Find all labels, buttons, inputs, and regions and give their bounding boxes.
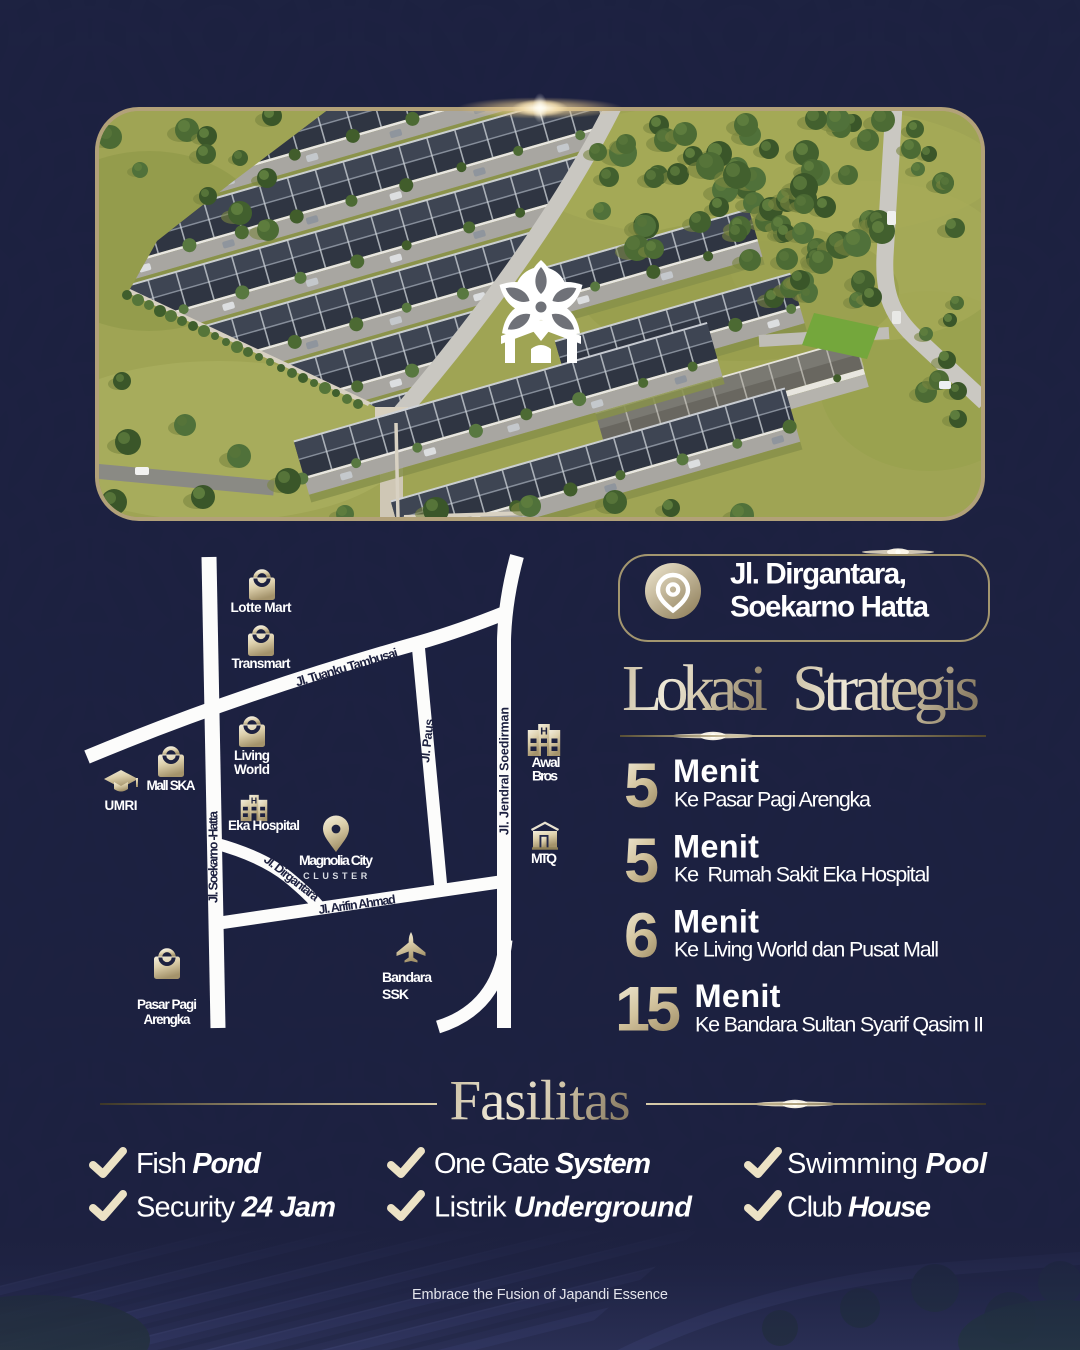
svg-text:Security 24 Jam: Security 24 Jam	[136, 1192, 336, 1224]
svg-text:Lotte Mart: Lotte Mart	[231, 600, 293, 615]
svg-text:Ke Bandara Sultan Syarif Qasim: Ke Bandara Sultan Syarif Qasim II	[695, 1013, 984, 1037]
svg-text:5: 5	[624, 826, 659, 896]
svg-text:Bandara: Bandara	[382, 969, 432, 985]
svg-text:Fasilitas: Fasilitas	[450, 1070, 631, 1133]
svg-text:5: 5	[624, 751, 659, 821]
svg-text:Strategis: Strategis	[792, 652, 980, 725]
svg-text:Magnolia City: Magnolia City	[299, 852, 373, 868]
svg-text:Ke Pasar Pagi Arengka: Ke Pasar Pagi Arengka	[674, 788, 871, 812]
svg-text:Lokasi: Lokasi	[622, 652, 768, 725]
svg-text:Menit: Menit	[673, 753, 759, 789]
svg-text:Ke Rumah Sakit Eka Hospital: Ke Rumah Sakit Eka Hospital	[674, 863, 930, 887]
svg-text:Bros: Bros	[532, 768, 558, 784]
svg-text:6: 6	[624, 901, 659, 971]
svg-text:CLUSTER: CLUSTER	[303, 871, 371, 881]
svg-text:Menit: Menit	[695, 978, 781, 1014]
svg-text:Jl. Jendral Soedirman: Jl. Jendral Soedirman	[498, 707, 512, 835]
svg-text:Jl. Soekarno -Hatta: Jl. Soekarno -Hatta	[207, 810, 221, 903]
svg-text:Embrace the Fusion of Japandi: Embrace the Fusion of Japandi Essence	[412, 1287, 668, 1303]
svg-text:H: H	[540, 726, 548, 738]
svg-text:Pasar Pagi: Pasar Pagi	[137, 997, 197, 1012]
svg-text:Eka Hospital: Eka Hospital	[228, 818, 300, 833]
svg-text:SSK: SSK	[382, 986, 409, 1002]
svg-text:MTQ: MTQ	[531, 850, 557, 866]
svg-text:H: H	[251, 795, 257, 805]
svg-text:Menit: Menit	[673, 829, 759, 865]
svg-text:UMRI: UMRI	[105, 798, 138, 813]
svg-text:Jl. Arifin Ahmad: Jl. Arifin Ahmad	[317, 892, 396, 917]
svg-text:15: 15	[615, 975, 681, 1045]
svg-text:Jl. Tuanku Tambusai: Jl. Tuanku Tambusai	[294, 645, 400, 689]
svg-text:Transmart: Transmart	[232, 656, 292, 671]
svg-text:Club House: Club House	[787, 1192, 931, 1224]
svg-text:One Gate System: One Gate System	[434, 1148, 651, 1180]
svg-text:Fish Pond: Fish Pond	[136, 1148, 262, 1180]
svg-text:World: World	[234, 762, 270, 777]
svg-text:Listrik Underground: Listrik Underground	[434, 1192, 693, 1224]
svg-text:Ke Living World dan Pusat Mall: Ke Living World dan Pusat Mall	[674, 938, 939, 962]
svg-text:Mall SKA: Mall SKA	[147, 778, 196, 793]
svg-text:Swimming Pool: Swimming Pool	[787, 1148, 988, 1180]
svg-text:Menit: Menit	[673, 904, 759, 940]
svg-text:Arengka: Arengka	[144, 1012, 191, 1027]
svg-text:Living: Living	[234, 748, 270, 763]
